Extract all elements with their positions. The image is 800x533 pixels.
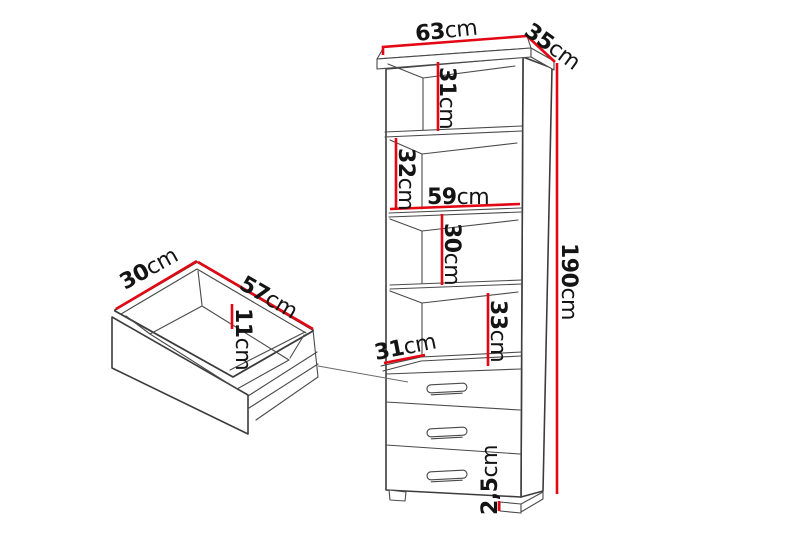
unit: cm [485, 330, 510, 363]
furniture-dimension-diagram: 63cm 35cm 190cm 31cm 32cm 59cm 30cm 33cm… [0, 0, 800, 533]
unit: cm [439, 253, 464, 286]
cabinet-side-panel [521, 57, 552, 497]
unit: cm [443, 16, 478, 44]
value: 32 [393, 148, 418, 178]
value: 2,5 [478, 478, 503, 515]
unit: cm [230, 338, 255, 371]
value: 11 [230, 308, 255, 338]
value: 63 [414, 19, 446, 47]
unit: cm [393, 178, 418, 211]
cabinet-height-label: 190cm [556, 243, 581, 320]
drawer-front-panel [112, 317, 248, 434]
fourth-compartment-label: 33cm [485, 300, 510, 362]
value: 33 [485, 300, 510, 330]
value: 31 [434, 67, 459, 97]
foot-height-label: 2,5cm [478, 445, 503, 515]
cabinet-foot-left [389, 490, 406, 501]
unit: cm [556, 287, 581, 320]
value: 190 [556, 243, 581, 288]
shelf-width-label: 59cm [427, 185, 489, 210]
cabinet-foot-right [500, 502, 521, 513]
second-compartment-label: 32cm [393, 148, 418, 210]
value: 30 [439, 223, 464, 253]
unit: cm [478, 445, 503, 478]
drawer-height-label: 11cm [230, 308, 255, 370]
value: 59 [427, 185, 457, 210]
drawer-depth-label: 30cm [116, 243, 182, 295]
diagram-canvas: 63cm 35cm 190cm 31cm 32cm 59cm 30cm 33cm… [0, 0, 800, 533]
third-compartment-label: 30cm [439, 223, 464, 285]
top-compartment-label: 31cm [434, 67, 459, 129]
unit: cm [434, 97, 459, 130]
cabinet [377, 36, 554, 513]
pullout-drawer [112, 262, 318, 434]
unit: cm [457, 185, 490, 210]
